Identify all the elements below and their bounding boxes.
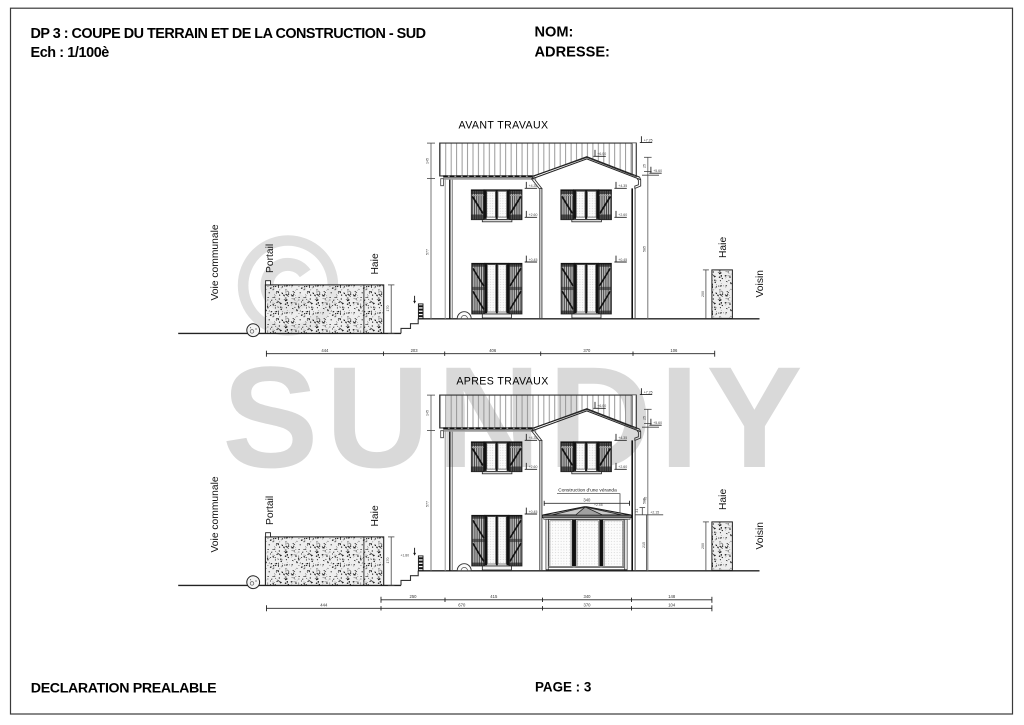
svg-text:444: 444 (321, 348, 329, 353)
svg-text:Portail: Portail (265, 244, 276, 273)
svg-text:+2.15: +2.15 (650, 511, 659, 515)
svg-text:31: 31 (635, 509, 639, 513)
svg-text:PAGE : 3: PAGE : 3 (535, 680, 591, 695)
svg-text:Voisin: Voisin (755, 270, 766, 298)
svg-text:+1.80: +1.80 (401, 554, 410, 558)
svg-text:+0.45: +0.45 (529, 258, 538, 262)
svg-text:AVANT TRAVAUX: AVANT TRAVAUX (459, 120, 549, 132)
svg-text:415: 415 (490, 594, 498, 599)
svg-text:148: 148 (668, 594, 676, 599)
svg-text:Haie: Haie (370, 253, 381, 274)
svg-text:+0.45: +0.45 (618, 258, 627, 262)
svg-text:APRES TRAVAUX: APRES TRAVAUX (456, 376, 548, 388)
svg-text:+2.60: +2.60 (529, 213, 538, 217)
svg-text:170: 170 (386, 306, 390, 312)
svg-text:370: 370 (584, 603, 592, 608)
svg-text:+4.35: +4.35 (529, 184, 538, 188)
svg-text:585: 585 (642, 246, 646, 252)
svg-text:DECLARATION PREALABLE: DECLARATION PREALABLE (31, 681, 217, 697)
svg-text:Portail: Portail (265, 496, 276, 525)
svg-text:170: 170 (386, 558, 390, 564)
svg-text:+2.58: +2.58 (594, 503, 603, 507)
svg-text:Haie: Haie (718, 237, 729, 258)
svg-text:106: 106 (670, 348, 678, 353)
svg-text:Haie: Haie (370, 505, 381, 526)
svg-text:ADRESSE:: ADRESSE: (535, 45, 610, 61)
svg-text:250: 250 (410, 594, 418, 599)
svg-text:670: 670 (458, 603, 466, 608)
svg-text:25: 25 (642, 416, 646, 420)
svg-text:200: 200 (701, 543, 705, 549)
svg-text:+5.60: +5.60 (653, 169, 662, 173)
svg-text:203: 203 (411, 348, 419, 353)
svg-text:444: 444 (320, 603, 328, 608)
svg-text:+5.60: +5.60 (653, 421, 662, 425)
svg-text:340: 340 (583, 498, 591, 503)
svg-text:+4.35: +4.35 (529, 436, 538, 440)
svg-text:NOM:: NOM: (535, 25, 574, 41)
svg-text:+4.35: +4.35 (618, 184, 627, 188)
svg-text:406: 406 (489, 348, 497, 353)
svg-text:145: 145 (425, 158, 429, 164)
svg-text:370: 370 (583, 348, 591, 353)
svg-text:200: 200 (701, 291, 705, 297)
svg-text:Voie communale: Voie communale (210, 224, 221, 300)
svg-text:+6.00: +6.00 (597, 152, 606, 156)
svg-text:215: 215 (642, 542, 646, 548)
svg-text:104: 104 (668, 603, 676, 608)
svg-text:DP 3 : COUPE DU TERRAIN ET DE: DP 3 : COUPE DU TERRAIN ET DE LA CONSTRU… (31, 26, 426, 42)
svg-text:Ech : 1/100è: Ech : 1/100è (31, 45, 110, 61)
svg-text:+2.60: +2.60 (529, 465, 538, 469)
svg-text:Voisin: Voisin (755, 522, 766, 550)
svg-text:+6.00: +6.00 (597, 404, 606, 408)
svg-text:+2.60: +2.60 (618, 213, 627, 217)
svg-text:+7.25: +7.25 (644, 391, 653, 395)
svg-text:Haie: Haie (718, 489, 729, 510)
svg-text:+7.25: +7.25 (644, 139, 653, 143)
svg-text:Voie communale: Voie communale (210, 476, 221, 552)
svg-text:577: 577 (425, 249, 429, 255)
svg-text:75: 75 (644, 497, 648, 501)
svg-text:+4.35: +4.35 (618, 436, 627, 440)
svg-text:+0.45: +0.45 (529, 510, 538, 514)
svg-text:+2.60: +2.60 (618, 465, 627, 469)
svg-text:25: 25 (642, 164, 646, 168)
svg-text:340: 340 (584, 594, 592, 599)
svg-text:Construction d'une véranda: Construction d'une véranda (558, 487, 617, 493)
svg-text:145: 145 (425, 410, 429, 416)
svg-text:577: 577 (425, 501, 429, 507)
